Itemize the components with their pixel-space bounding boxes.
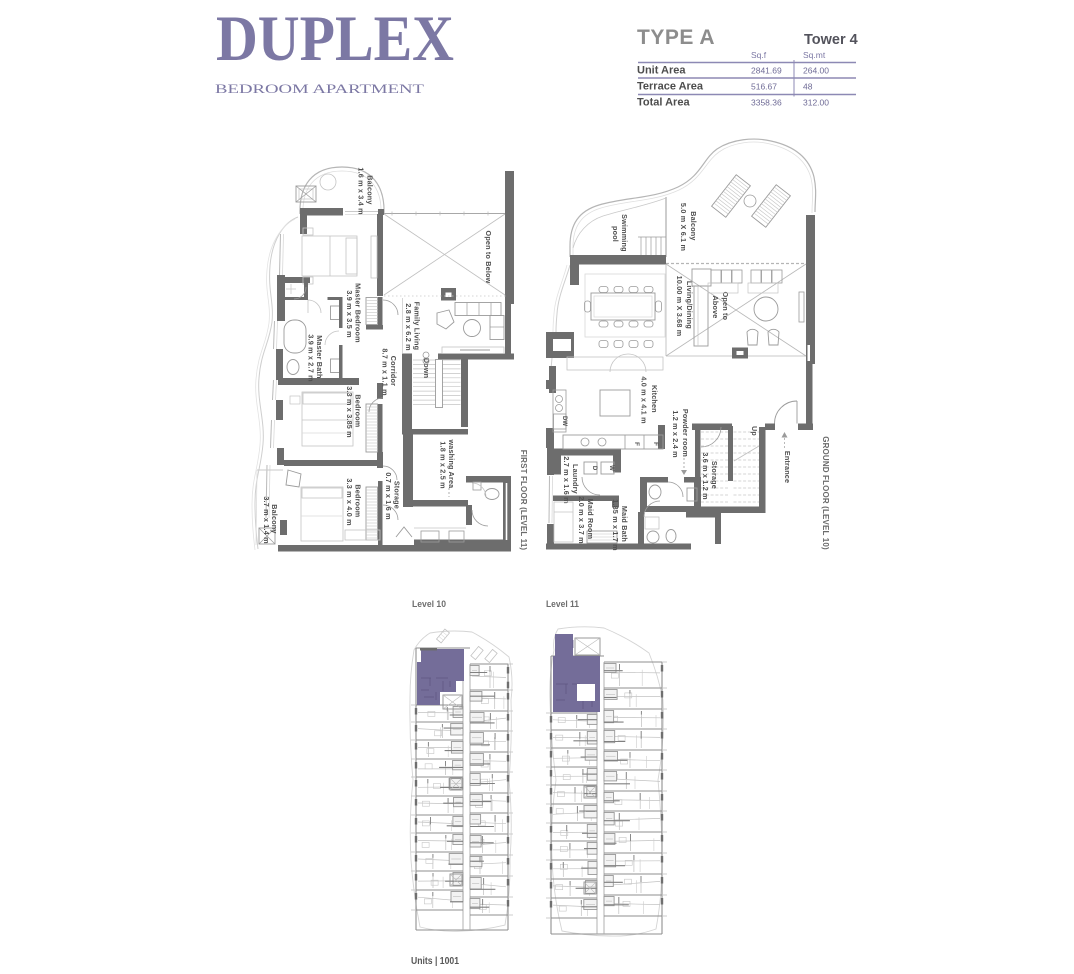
svg-text:GROUND FLOOR (LEVEL 10): GROUND FLOOR (LEVEL 10) xyxy=(821,436,830,550)
svg-text:Units | 1001: Units | 1001 xyxy=(411,956,459,967)
svg-text:F: F xyxy=(633,442,640,446)
svg-text:264.00: 264.00 xyxy=(803,66,829,76)
svg-text:Unit Area: Unit Area xyxy=(637,65,686,77)
svg-text:FIRST FLOOR (LEVEL 11): FIRST FLOOR (LEVEL 11) xyxy=(519,450,528,551)
svg-text:Entrance: Entrance xyxy=(783,451,792,483)
svg-text:Maid Bath 1.85 m x 1.7 m: Maid Bath 1.85 m x 1.7 m xyxy=(611,499,629,551)
svg-text:Terrace Area: Terrace Area xyxy=(637,81,704,93)
svg-text:48: 48 xyxy=(803,82,813,92)
svg-text:Level 10: Level 10 xyxy=(412,599,446,610)
svg-text:Tower 4: Tower 4 xyxy=(804,32,858,48)
svg-text:Level 11: Level 11 xyxy=(546,599,580,610)
svg-text:Powder room 1.2 m x 2.4 m: Powder room 1.2 m x 2.4 m xyxy=(671,409,690,459)
svg-text:W: W xyxy=(608,465,614,471)
svg-text:washing Area 1.8 m x 2.5 m: washing Area 1.8 m x 2.5 m xyxy=(439,438,457,490)
svg-text:Total Area: Total Area xyxy=(637,97,690,109)
svg-text:BEDROOM APARTMENT: BEDROOM APARTMENT xyxy=(215,81,424,96)
svg-text:Living/Dining 10.00 m X 3.68 m: Living/Dining 10.00 m X 3.68 m xyxy=(675,276,694,337)
svg-text:Bedroom 3.3 m x 4.0 m: Bedroom 3.3 m x 4.0 m xyxy=(345,478,363,525)
svg-text:D: D xyxy=(591,466,597,471)
svg-text:Open to Below: Open to Below xyxy=(484,231,493,284)
svg-text:Maid Room 2.0 m x 3.7 m: Maid Room 2.0 m x 3.7 m xyxy=(577,496,595,543)
svg-text:Master Bedroom 3.9 m x 3.5 m: Master Bedroom 3.9 m x 3.5 m xyxy=(345,283,363,345)
svg-text:Family Living 2.8 m x 6.2 m: Family Living 2.8 m x 6.2 m xyxy=(404,302,422,353)
svg-text:F: F xyxy=(652,442,659,446)
svg-text:Up: Up xyxy=(750,426,757,436)
svg-text:Sq.mt: Sq.mt xyxy=(803,50,826,60)
svg-text:516.67: 516.67 xyxy=(751,82,777,92)
svg-text:Open to Above: Open to Above xyxy=(711,292,730,323)
svg-text:TYPE A: TYPE A xyxy=(637,26,715,49)
svg-text:DUPLEX: DUPLEX xyxy=(216,3,454,75)
svg-text:3358.36: 3358.36 xyxy=(751,98,782,108)
svg-text:DW: DW xyxy=(561,416,567,426)
svg-text:312.00: 312.00 xyxy=(803,98,829,108)
svg-text:Sq.f: Sq.f xyxy=(751,50,767,60)
svg-text:2841.69: 2841.69 xyxy=(751,66,782,76)
svg-text:Master Bath 3.9 m x 2.7 m: Master Bath 3.9 m x 2.7 m xyxy=(307,334,325,381)
